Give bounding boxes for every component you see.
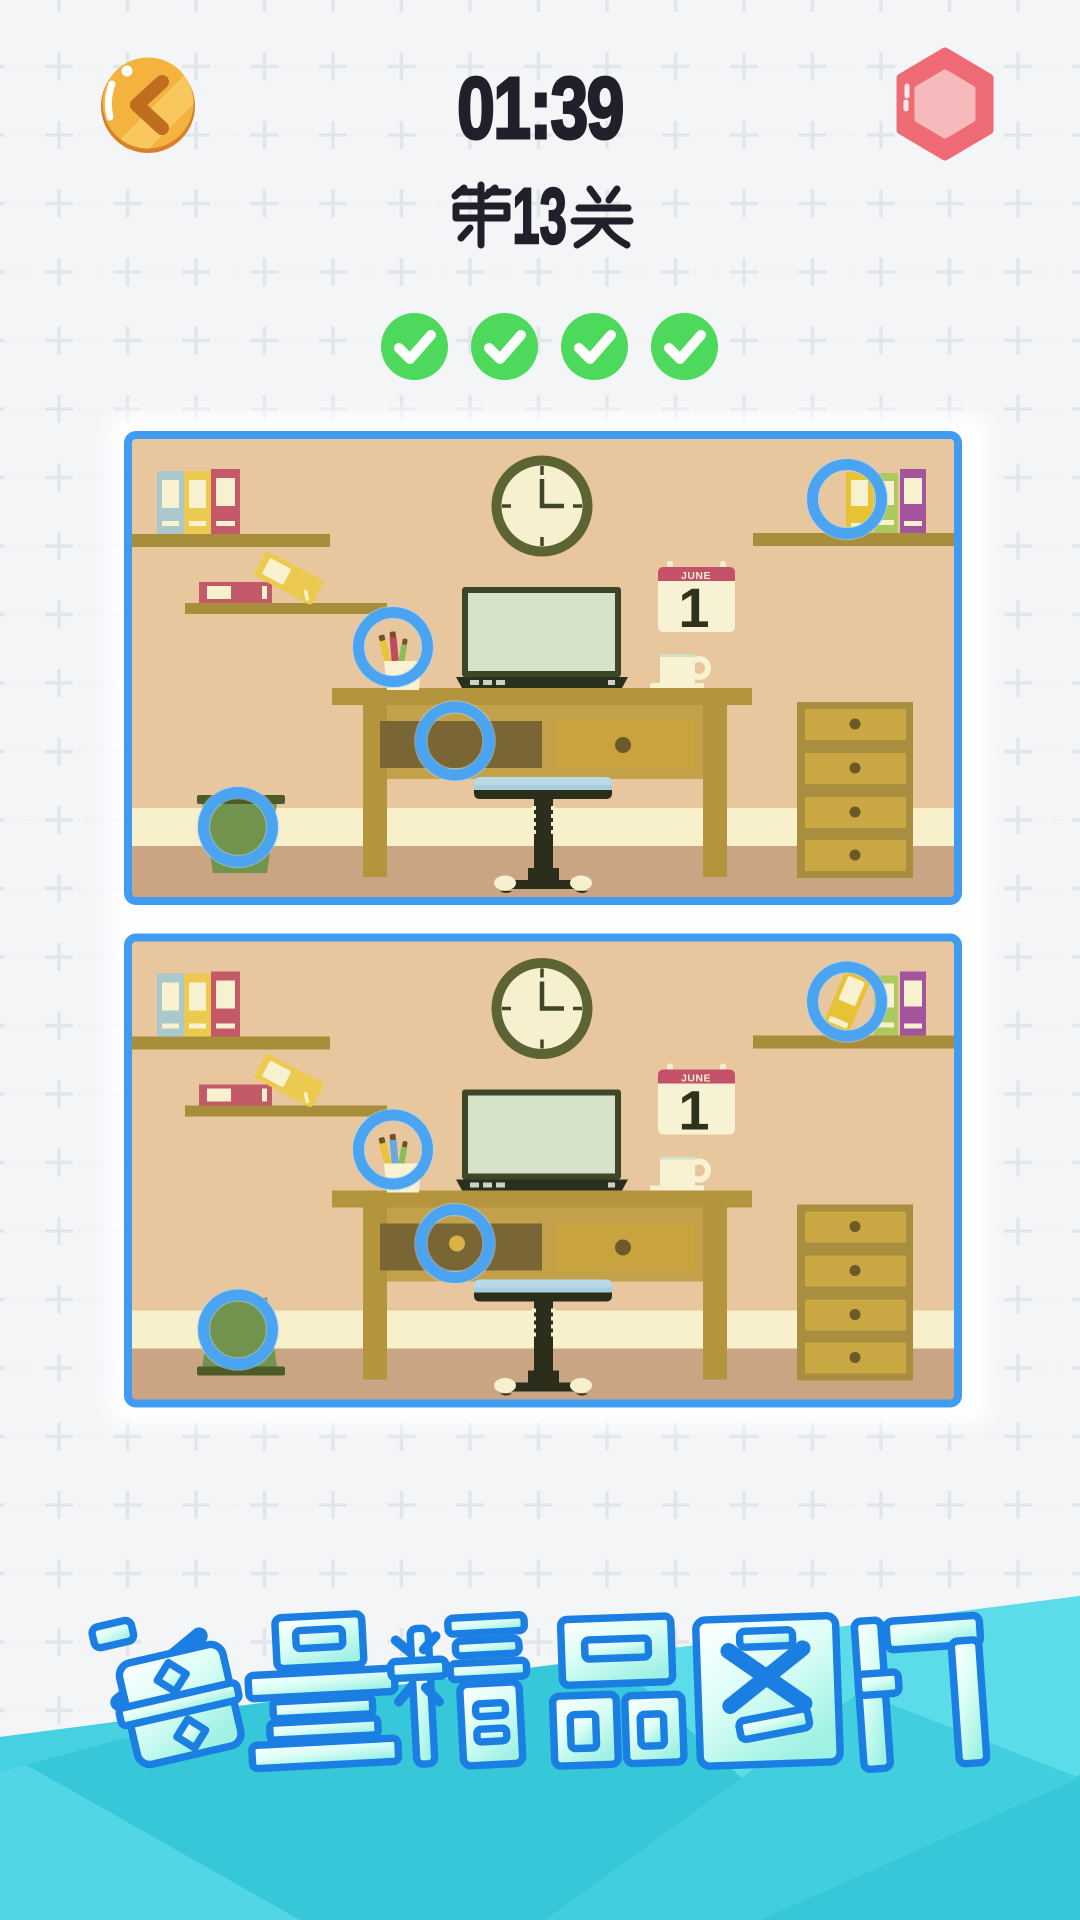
svg-text:01:39: 01:39 — [457, 59, 623, 157]
svg-text:13: 13 — [512, 172, 566, 260]
